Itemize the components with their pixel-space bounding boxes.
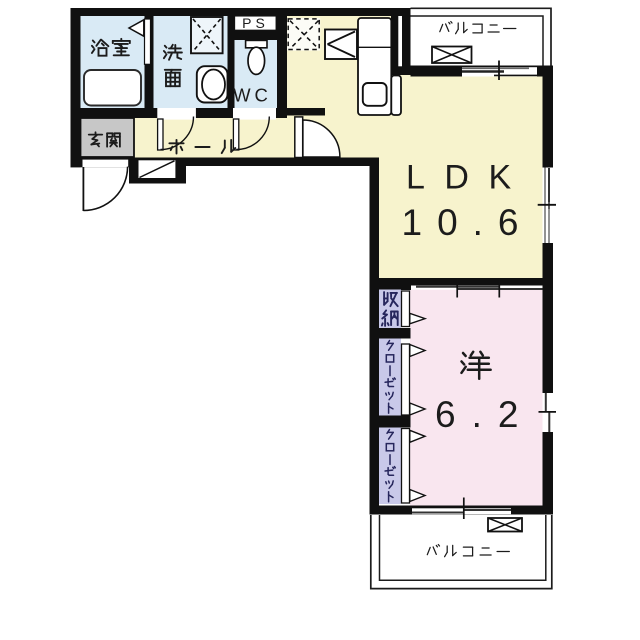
svg-text:LDK: LDK <box>406 159 531 197</box>
svg-text:6.2: 6.2 <box>435 394 534 435</box>
svg-text:PS: PS <box>242 15 269 31</box>
svg-text:10.6: 10.6 <box>402 202 534 243</box>
svg-text:WC: WC <box>233 85 272 106</box>
